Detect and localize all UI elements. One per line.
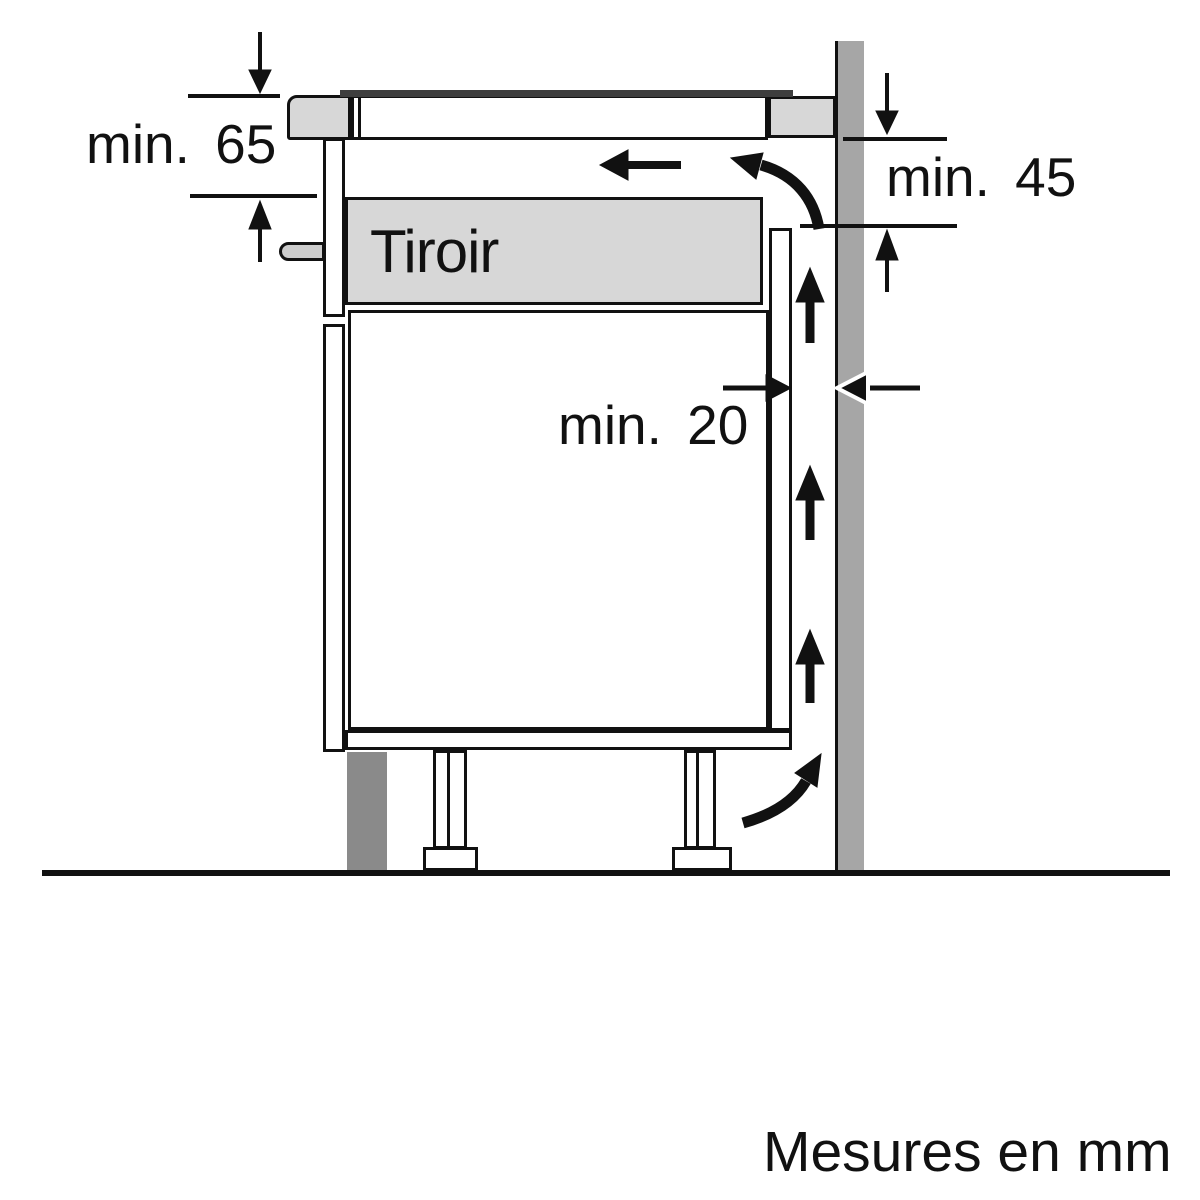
cabinet-leg bbox=[684, 750, 716, 849]
airflow-up-arrow bbox=[796, 630, 824, 664]
dimension-arrow-up bbox=[249, 201, 271, 229]
plinth-support bbox=[347, 752, 387, 870]
airflow-curved-top-arrow bbox=[761, 165, 819, 229]
worktop-right-section bbox=[768, 96, 836, 138]
dimension-arrow-down bbox=[249, 70, 271, 93]
cabinet-leg-detail bbox=[696, 752, 699, 847]
dimension-arrow-down bbox=[876, 111, 898, 134]
airflow-curved-top-arrow bbox=[731, 153, 763, 179]
cabinet-foot bbox=[423, 847, 478, 871]
airflow-curved-bottom-arrow bbox=[795, 754, 821, 787]
dimension-arrow-up bbox=[876, 230, 898, 260]
rear-vent-panel bbox=[769, 228, 792, 731]
dimension-label-min-65: min. 65 bbox=[86, 117, 276, 172]
cabinet-front-lower bbox=[323, 324, 345, 752]
cooktop-left-seam bbox=[358, 97, 361, 138]
airflow-left-arrow bbox=[600, 150, 628, 180]
drawer-box: Tiroir bbox=[345, 197, 763, 305]
drawer-label: Tiroir bbox=[370, 222, 498, 282]
airflow-curved-bottom-arrow bbox=[743, 781, 806, 823]
airflow-up-arrow bbox=[796, 268, 824, 302]
installation-diagram: Tiroir bbox=[0, 0, 1200, 1200]
airflow-up-arrow bbox=[796, 466, 824, 500]
cooktop-glass-surface bbox=[340, 90, 793, 97]
cabinet-interior bbox=[348, 310, 769, 730]
cabinet-leg-detail bbox=[447, 752, 450, 847]
cabinet-bottom-panel bbox=[345, 730, 792, 750]
drawer-handle bbox=[279, 242, 325, 261]
cabinet-foot bbox=[672, 847, 732, 871]
floor-line bbox=[42, 870, 1170, 876]
units-note: Mesures en mm bbox=[763, 1124, 1172, 1181]
cooktop-body bbox=[351, 95, 768, 140]
cabinet-front-upper bbox=[323, 138, 345, 317]
wall bbox=[835, 41, 864, 871]
worktop-left-edge bbox=[287, 95, 351, 140]
dimension-label-min-20: min. 20 bbox=[558, 398, 748, 453]
cabinet-leg bbox=[433, 750, 467, 849]
dimension-label-min-45: min. 45 bbox=[886, 150, 1076, 205]
